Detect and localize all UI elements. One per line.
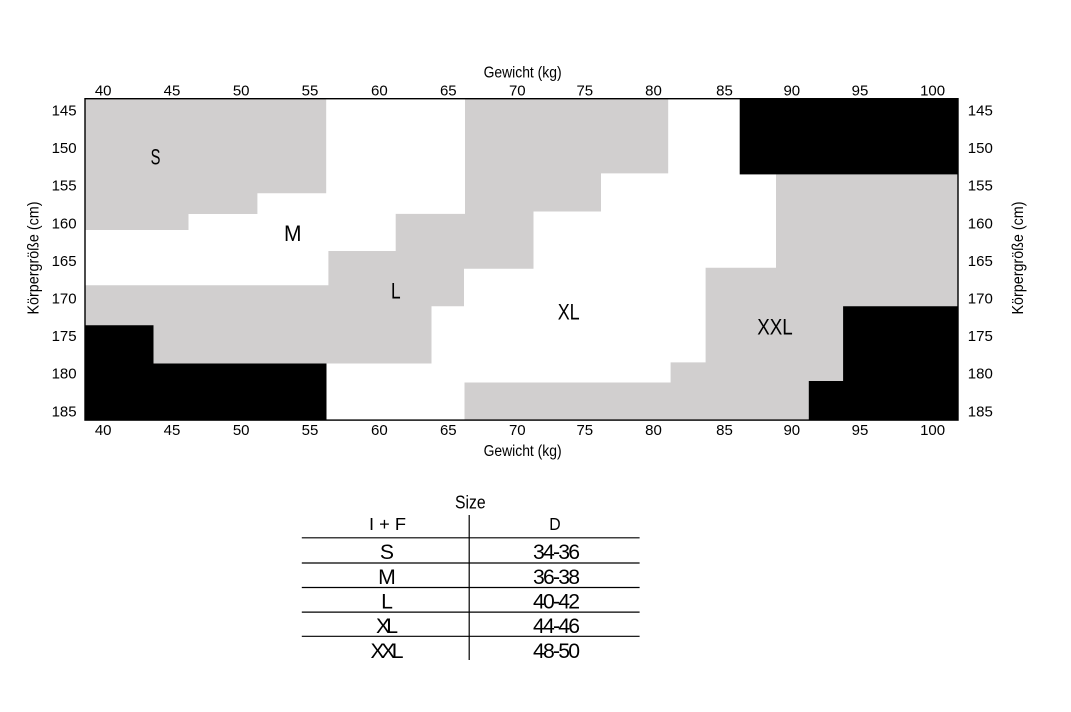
svg-text:180: 180 — [968, 366, 993, 383]
svg-text:50: 50 — [233, 82, 250, 99]
svg-text:M: M — [284, 221, 302, 246]
svg-text:55: 55 — [302, 422, 319, 439]
svg-text:44-46: 44-46 — [533, 615, 580, 638]
svg-text:XL: XL — [376, 615, 398, 638]
svg-text:80: 80 — [645, 82, 662, 99]
svg-text:160: 160 — [52, 215, 77, 232]
svg-text:150: 150 — [968, 140, 993, 157]
svg-text:170: 170 — [968, 291, 993, 308]
svg-text:85: 85 — [716, 82, 733, 99]
svg-text:60: 60 — [371, 422, 388, 439]
svg-text:95: 95 — [852, 422, 869, 439]
svg-text:Körpergröße (cm): Körpergröße (cm) — [26, 202, 43, 315]
svg-text:185: 185 — [52, 403, 77, 420]
svg-text:150: 150 — [52, 140, 77, 157]
svg-text:180: 180 — [52, 366, 77, 383]
svg-text:75: 75 — [576, 82, 593, 99]
svg-text:90: 90 — [783, 82, 800, 99]
svg-text:90: 90 — [783, 422, 800, 439]
svg-text:45: 45 — [164, 422, 181, 439]
svg-text:75: 75 — [576, 422, 593, 439]
svg-text:XXL: XXL — [371, 640, 404, 663]
svg-text:170: 170 — [52, 291, 77, 308]
svg-text:95: 95 — [852, 82, 869, 99]
svg-text:60: 60 — [371, 82, 388, 99]
svg-text:155: 155 — [968, 178, 993, 195]
svg-text:40-42: 40-42 — [533, 591, 580, 614]
svg-text:40: 40 — [95, 82, 112, 99]
svg-text:55: 55 — [302, 82, 319, 99]
svg-text:34-36: 34-36 — [533, 541, 580, 564]
svg-text:65: 65 — [440, 82, 457, 99]
svg-text:50: 50 — [233, 422, 250, 439]
svg-text:Gewicht (kg): Gewicht (kg) — [484, 443, 562, 460]
svg-text:S: S — [151, 144, 161, 169]
svg-text:100: 100 — [920, 82, 945, 99]
svg-text:XXL: XXL — [757, 315, 793, 340]
svg-text:80: 80 — [645, 422, 662, 439]
svg-text:65: 65 — [440, 422, 457, 439]
svg-text:45: 45 — [164, 82, 181, 99]
svg-text:70: 70 — [509, 422, 526, 439]
svg-text:40: 40 — [95, 422, 112, 439]
svg-text:L: L — [381, 591, 393, 614]
svg-text:100: 100 — [920, 422, 945, 439]
svg-text:S: S — [380, 541, 394, 564]
svg-text:145: 145 — [52, 103, 77, 120]
svg-text:175: 175 — [52, 328, 77, 345]
svg-text:165: 165 — [968, 253, 993, 270]
svg-text:165: 165 — [52, 253, 77, 270]
svg-text:I + F: I + F — [369, 514, 406, 534]
svg-text:175: 175 — [968, 328, 993, 345]
svg-text:48-50: 48-50 — [533, 640, 580, 663]
svg-text:Gewicht (kg): Gewicht (kg) — [484, 64, 562, 81]
svg-text:Size: Size — [455, 492, 486, 513]
svg-text:M: M — [378, 566, 396, 589]
svg-text:D: D — [549, 514, 560, 534]
svg-text:85: 85 — [716, 422, 733, 439]
svg-text:XL: XL — [558, 299, 580, 324]
svg-text:160: 160 — [968, 215, 993, 232]
svg-text:36-38: 36-38 — [533, 566, 580, 589]
svg-text:L: L — [391, 278, 401, 303]
svg-text:70: 70 — [509, 82, 526, 99]
svg-text:145: 145 — [968, 103, 993, 120]
svg-text:185: 185 — [968, 403, 993, 420]
svg-text:Körpergröße (cm): Körpergröße (cm) — [1010, 201, 1027, 314]
svg-text:155: 155 — [52, 178, 77, 195]
